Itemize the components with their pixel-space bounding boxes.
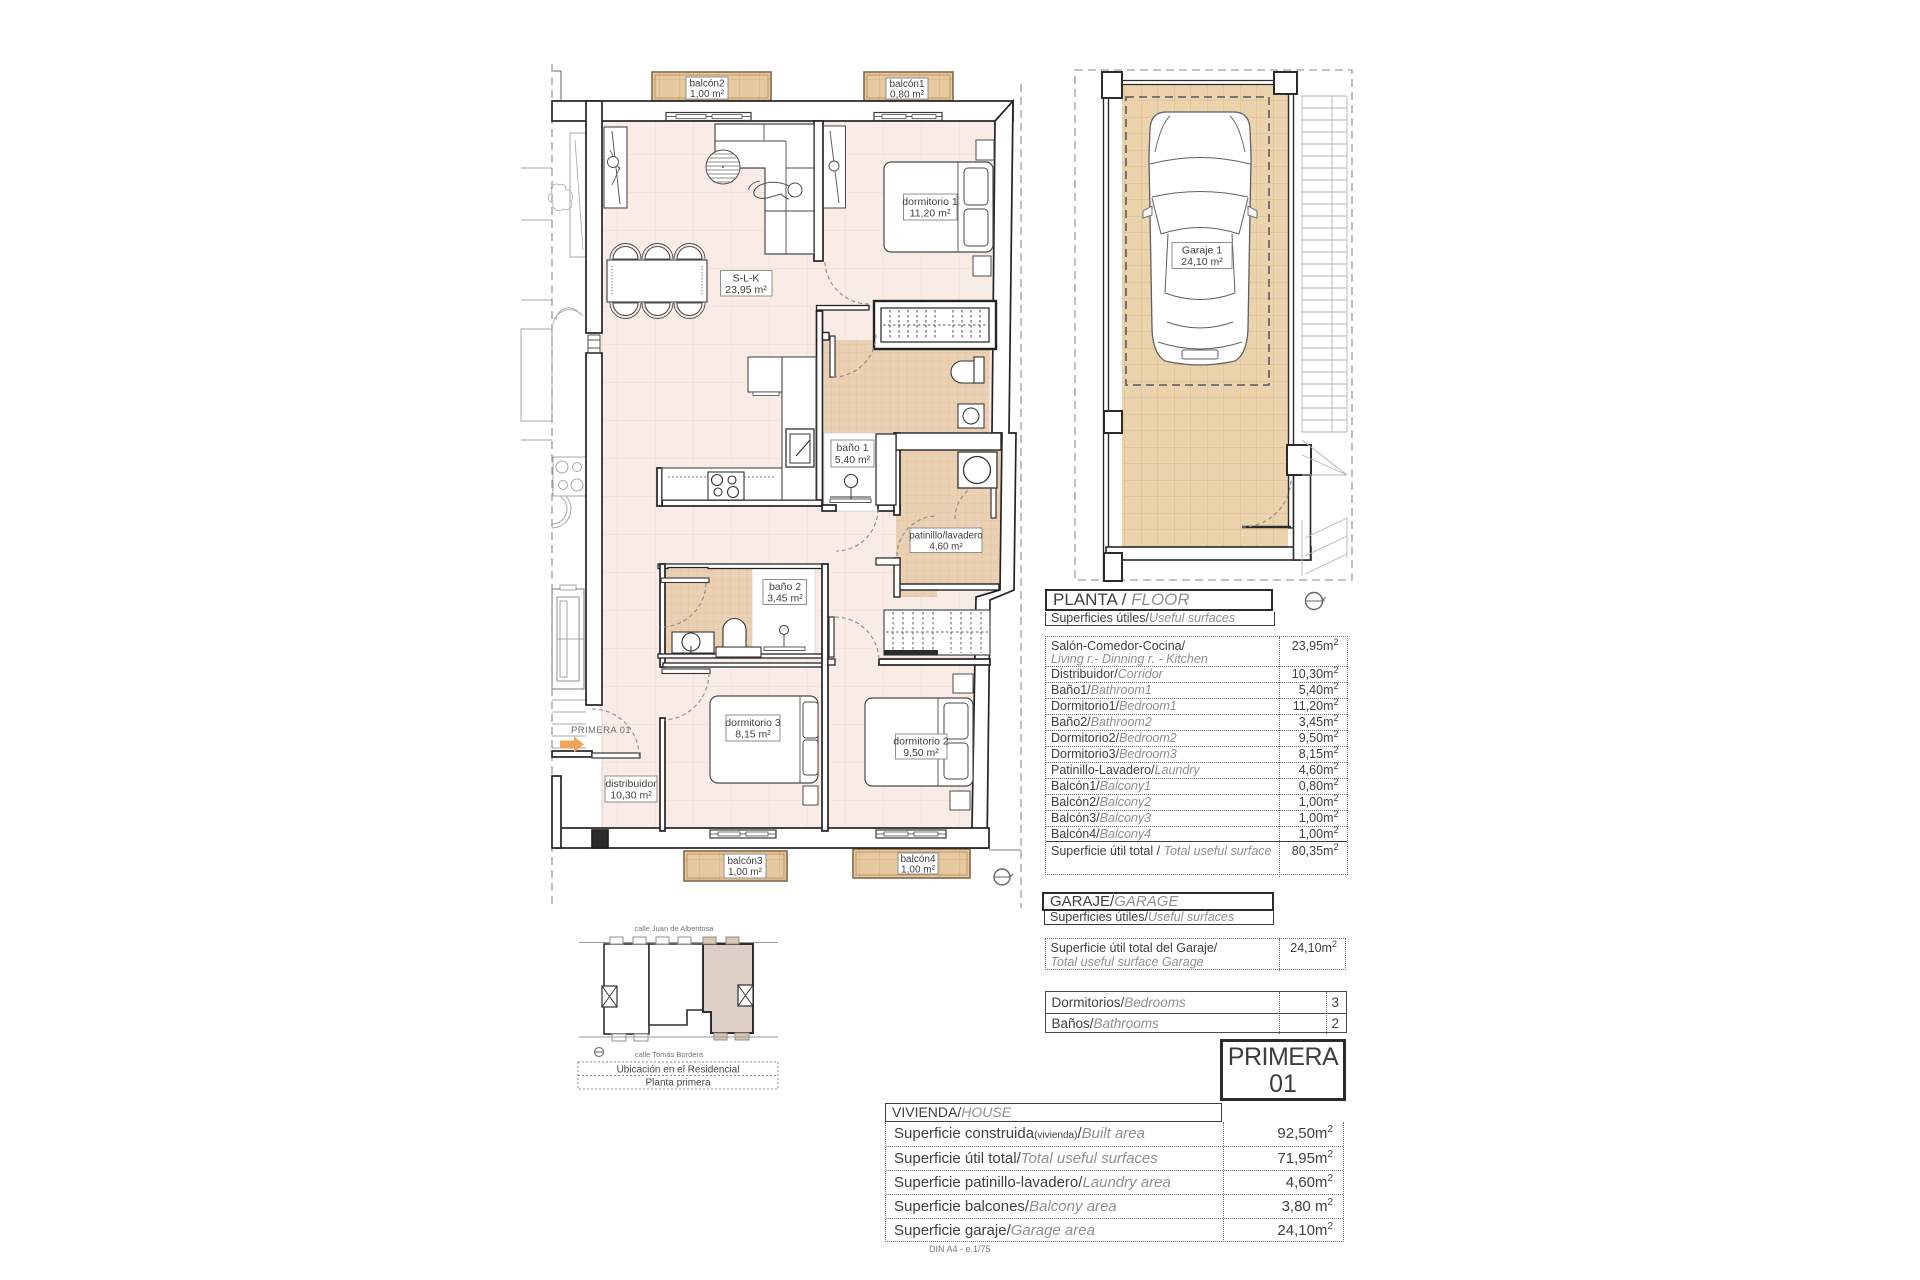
svg-text:3,45 m²: 3,45 m² (767, 593, 803, 605)
svg-text:balcón3: balcón3 (727, 856, 762, 867)
svg-text:0,80 m²: 0,80 m² (890, 90, 925, 101)
svg-text:baño 1: baño 1 (836, 442, 868, 454)
svg-text:9,50 m²: 9,50 m² (903, 747, 939, 759)
svg-text:Ubicación en el Residencial: Ubicación en el Residencial (617, 1065, 740, 1076)
svg-text:8,15 m²: 8,15 m² (735, 729, 771, 741)
svg-text:Planta primera: Planta primera (645, 1078, 710, 1089)
svg-text:balcón1: balcón1 (889, 79, 924, 90)
svg-text:1,00 m²: 1,00 m² (728, 867, 763, 878)
svg-text:calle Tomás Bordera: calle Tomás Bordera (635, 1050, 704, 1059)
svg-text:5,40 m²: 5,40 m² (835, 454, 871, 466)
svg-text:dormitorio 3: dormitorio 3 (725, 717, 781, 729)
svg-text:4,60 m²: 4,60 m² (929, 542, 963, 553)
svg-text:baño 2: baño 2 (769, 581, 801, 593)
svg-text:1,00 m²: 1,00 m² (901, 865, 936, 876)
svg-text:dormitorio 2: dormitorio 2 (893, 736, 949, 748)
svg-text:23,95 m²: 23,95 m² (725, 284, 767, 296)
svg-text:24,10 m²: 24,10 m² (1181, 256, 1223, 268)
svg-text:PRIMERA 01: PRIMERA 01 (571, 725, 631, 736)
svg-text:balcón2: balcón2 (689, 79, 724, 90)
svg-text:dormitorio 1: dormitorio 1 (902, 196, 958, 208)
svg-text:calle Juan de Albentosa: calle Juan de Albentosa (634, 924, 714, 933)
svg-text:Garaje 1: Garaje 1 (1182, 245, 1222, 257)
svg-text:balcón4: balcón4 (900, 854, 935, 865)
svg-text:11,20 m²: 11,20 m² (910, 208, 951, 220)
svg-text:distribuidor: distribuidor (605, 778, 657, 790)
svg-text:10,30 m²: 10,30 m² (610, 790, 652, 802)
svg-text:patinillo/lavadero: patinillo/lavadero (909, 531, 983, 542)
svg-text:1,00 m²: 1,00 m² (690, 89, 725, 100)
svg-text:S-L-K: S-L-K (733, 273, 760, 285)
